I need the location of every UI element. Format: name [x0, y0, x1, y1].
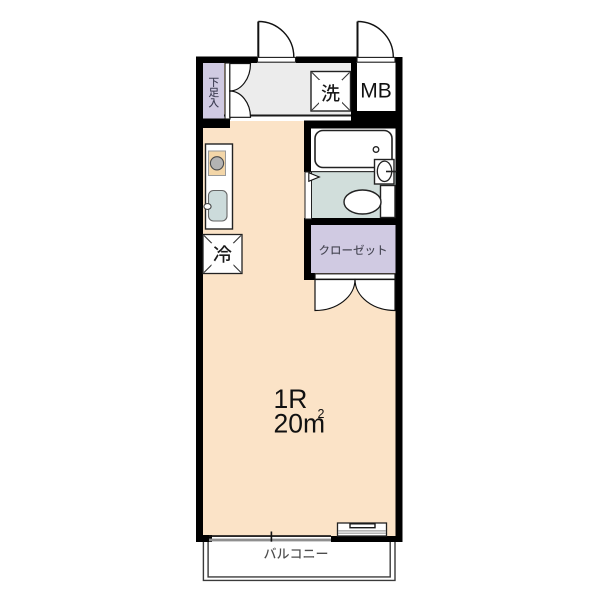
- svg-text:MB: MB: [360, 79, 392, 102]
- svg-text:2: 2: [318, 407, 325, 421]
